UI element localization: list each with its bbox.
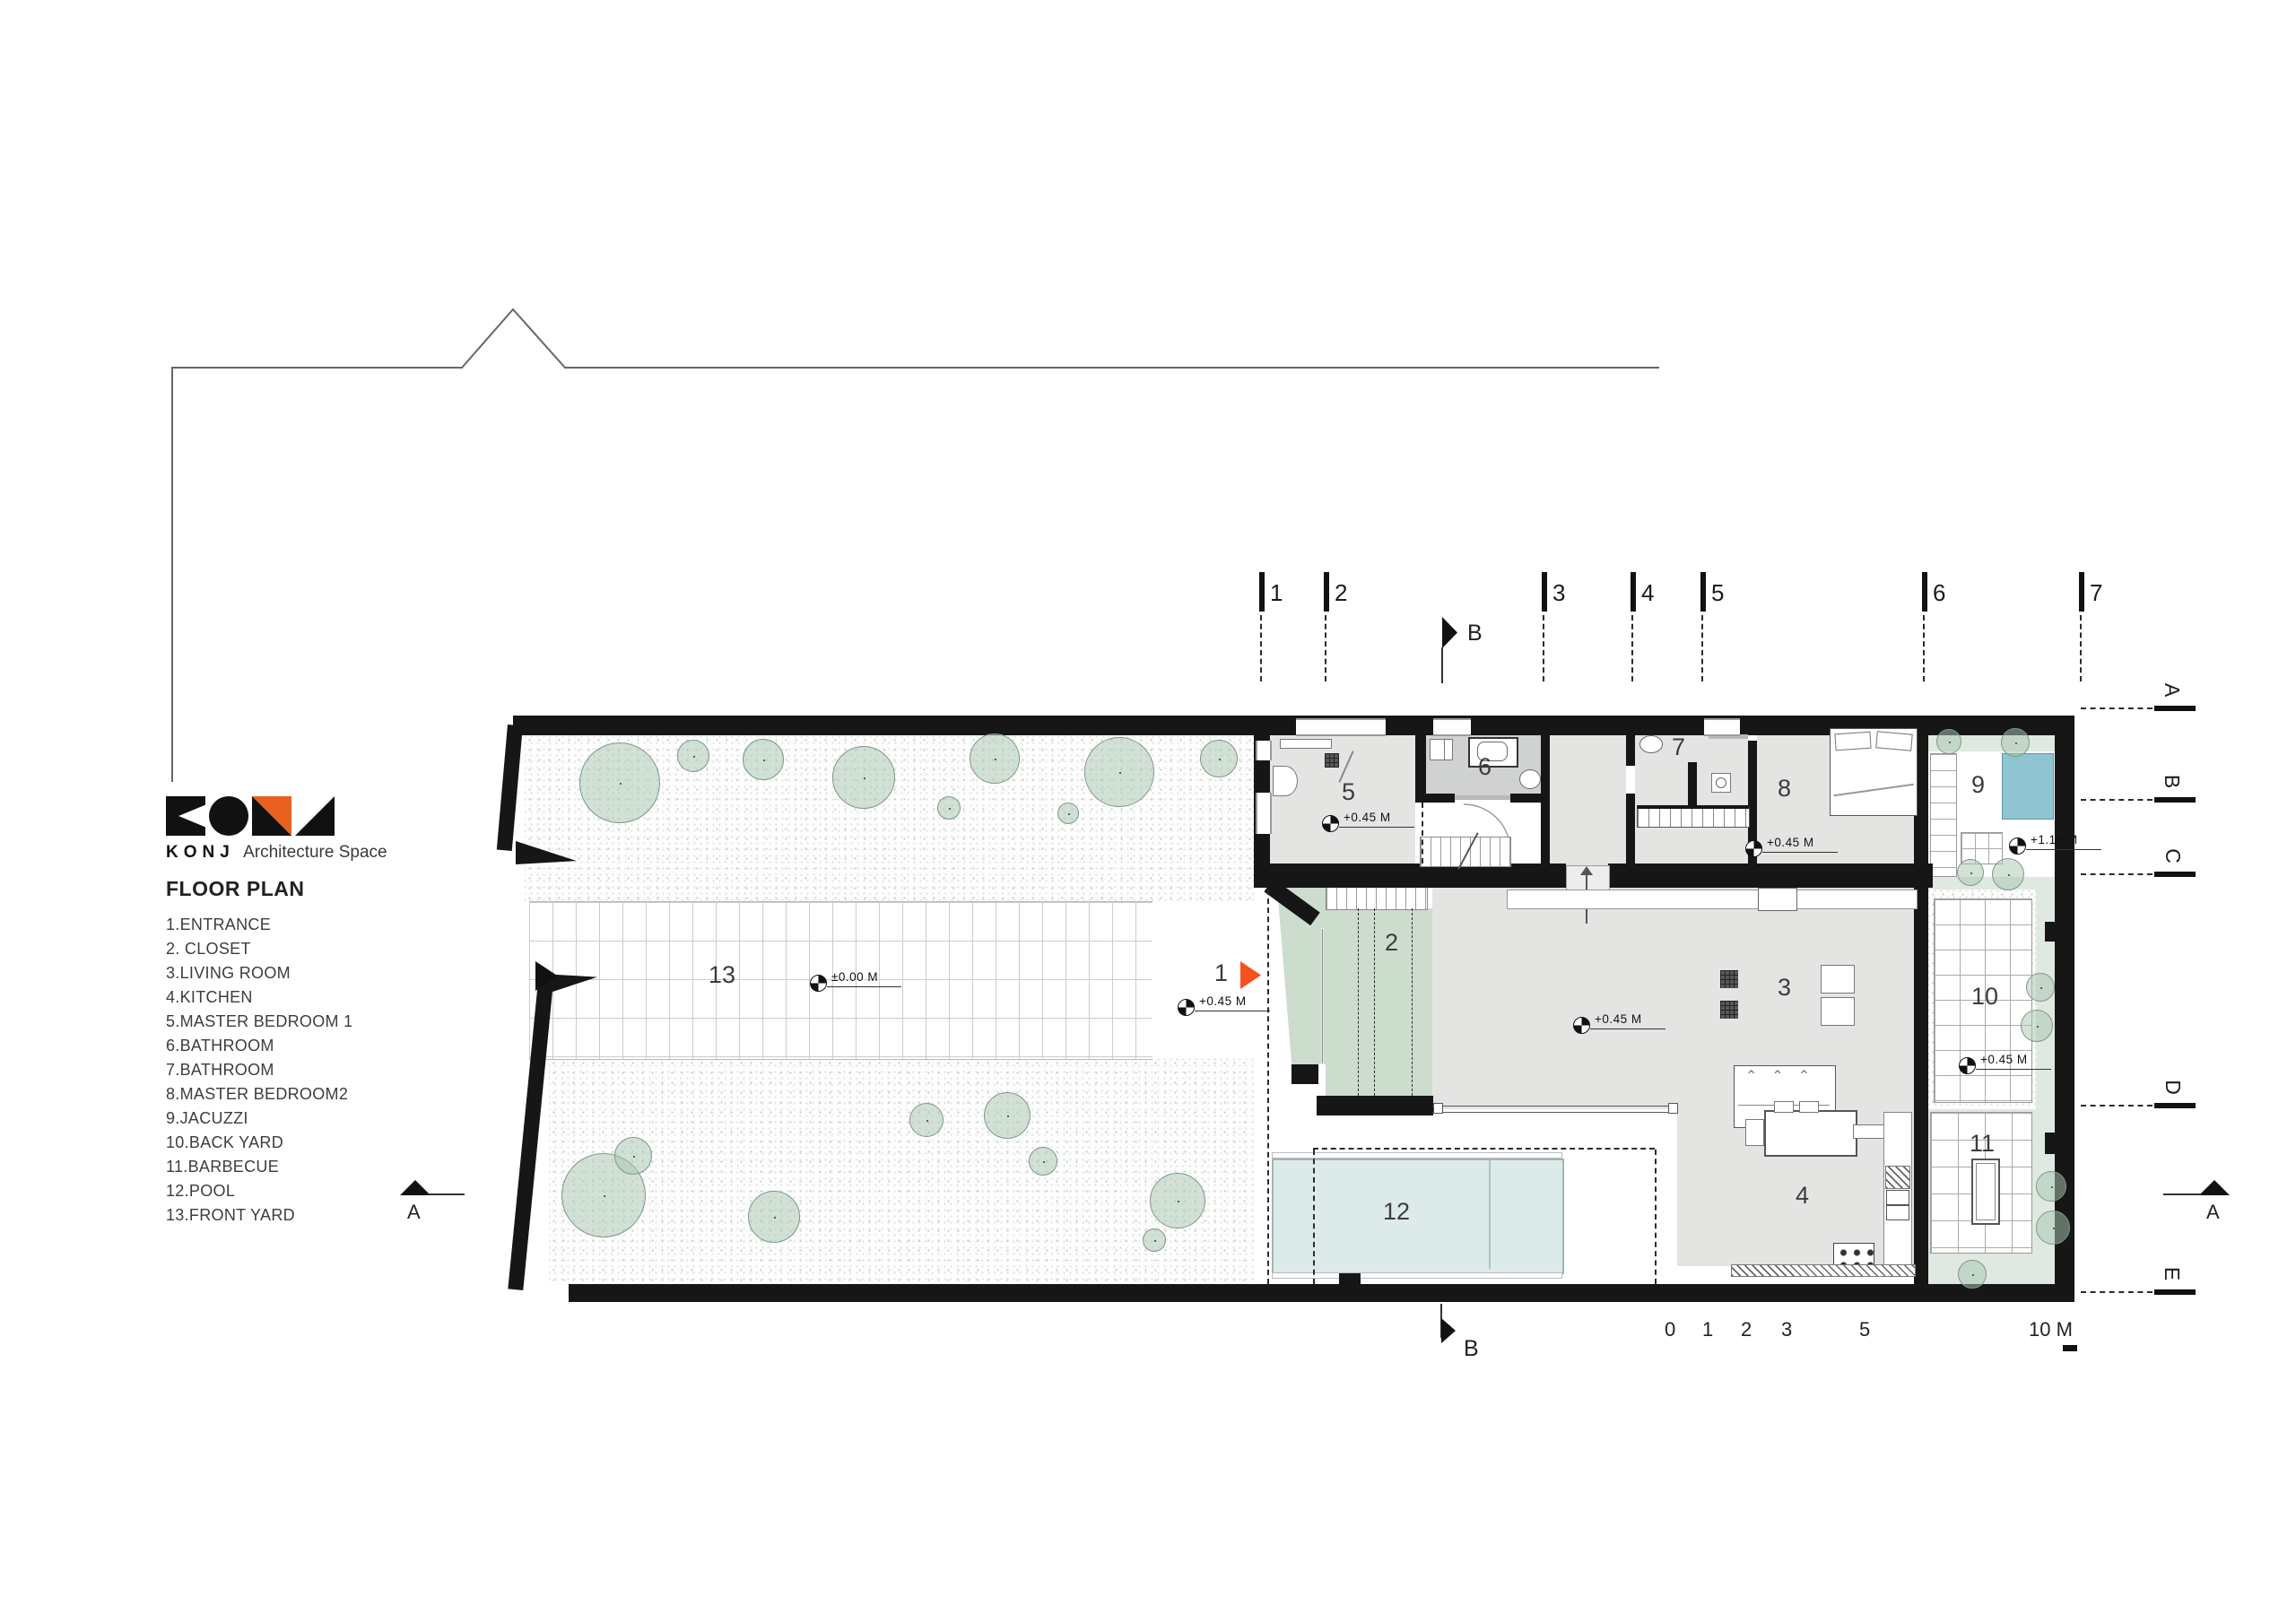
tree-icon — [1143, 1228, 1166, 1252]
bedroom1-cabinet — [1325, 753, 1339, 768]
grid2-dashed-pool — [1313, 1150, 1315, 1284]
legend-item-living: 3.LIVING ROOM — [166, 964, 462, 988]
bathroom2-toilet — [1639, 735, 1663, 753]
grid-col-1: 1 — [1270, 579, 1283, 607]
legend-item-entrance: 1.ENTRANCE — [166, 916, 462, 940]
living-counter — [1507, 890, 1918, 909]
section-b-top-label: B — [1467, 621, 1483, 647]
south-wall — [569, 1284, 2074, 1302]
dining-pad-a — [1774, 1101, 1794, 1113]
room-number-living: 3 — [1778, 974, 1791, 1002]
window-bathroom1-north — [1433, 718, 1471, 736]
tree-icon — [2036, 1171, 2066, 1202]
legend-item-kitchen: 4.KITCHEN — [166, 988, 462, 1012]
closet-glass-wall — [1321, 928, 1324, 1064]
pool-deck-edge-bottom — [1272, 1272, 1562, 1279]
bathroom1-west-wall — [1415, 716, 1426, 801]
room-number-backyard: 10 — [1971, 983, 1998, 1011]
grid-col-2: 2 — [1335, 579, 1347, 607]
room-number-bedroom1: 5 — [1342, 778, 1355, 806]
kitchen-faucet-unit — [1885, 1166, 1910, 1189]
legend-item-barbecue: 11.BARBECUE — [166, 1158, 462, 1182]
level-marker-bedroom2: +0.45 M — [1745, 836, 1838, 857]
interior-band-wall-east — [1608, 864, 1933, 888]
pool-lane-line — [1489, 1160, 1491, 1269]
tree-icon — [677, 740, 709, 772]
tree-icon — [1992, 858, 2024, 890]
room-number-entrance: 1 — [1214, 959, 1228, 987]
jacuzzi-basin — [2002, 753, 2054, 820]
tree-icon — [1029, 1147, 1057, 1176]
hall-floor — [1550, 735, 1626, 865]
east-wall-stub-c — [2045, 922, 2057, 942]
logo-j-icon — [295, 796, 335, 836]
hall-east-wall — [1541, 716, 1550, 865]
kitchen-sink-bowl-a — [1886, 1190, 1909, 1205]
kitchen-counter-hatch — [1731, 1264, 1916, 1277]
east-wall-stub-d — [2045, 1133, 2057, 1154]
bathroom1-door-sill — [1455, 795, 1510, 800]
window-bedroom1-west-a — [1256, 741, 1272, 760]
logo-brand-text: KONJ — [166, 843, 235, 862]
room-number-bathroom2: 7 — [1672, 733, 1685, 761]
tree-icon — [1150, 1173, 1205, 1228]
tree-icon — [1084, 737, 1154, 807]
living-armchair-b — [1821, 997, 1855, 1026]
room-number-frontyard: 13 — [709, 961, 735, 989]
level-icon — [810, 975, 827, 992]
logo-tagline-text: Architecture Space — [243, 843, 387, 862]
scale-3: 3 — [1781, 1318, 1792, 1341]
tree-icon — [748, 1191, 800, 1243]
grid-col-7: 7 — [2090, 579, 2102, 607]
interior-band-wall-west — [1254, 864, 1566, 888]
room-number-bedroom2: 8 — [1778, 775, 1791, 803]
logo: KONJ Architecture Space — [166, 796, 399, 868]
grid-col-4: 4 — [1641, 579, 1654, 607]
tree-icon — [832, 746, 895, 809]
tree-icon — [2021, 1010, 2053, 1042]
legend-item-bath1: 6.BATHROOM — [166, 1037, 462, 1061]
room-number-barbecue: 11 — [1970, 1130, 1995, 1158]
legend-item-jacuzzi: 9.JACUZZI — [166, 1109, 462, 1133]
room-number-closet: 2 — [1385, 929, 1398, 957]
barbecue-unit — [1971, 1159, 2000, 1225]
level-icon — [1959, 1057, 1976, 1074]
grid-row-e: E — [2160, 1267, 2184, 1280]
bathroom1-toilet — [1519, 769, 1541, 789]
south-wall-stub — [1339, 1273, 1361, 1286]
sliding-door-handle-east — [1668, 1103, 1678, 1114]
tree-icon — [1057, 803, 1079, 824]
jacuzzi-deck-slats — [1930, 753, 1957, 877]
tree-icon — [1958, 1260, 1987, 1289]
grid-col-3: 3 — [1552, 579, 1565, 607]
pool-zone-dashed-east — [1655, 1150, 1657, 1284]
level-marker-front-yard: ±0.00 M — [810, 970, 901, 992]
tree-icon — [1957, 859, 1984, 886]
scale-10m: 10 M — [2029, 1318, 2073, 1341]
dining-table — [1764, 1110, 1857, 1157]
living-sliding-door — [1432, 1106, 1677, 1113]
level-marker-entrance: +0.45 M — [1178, 994, 1270, 1016]
scale-5: 5 — [1859, 1318, 1870, 1341]
logo-o-icon — [209, 796, 248, 836]
living-armchair-a — [1821, 965, 1855, 994]
level-icon — [1745, 840, 1762, 857]
scale-1: 1 — [1702, 1318, 1713, 1341]
window-bathroom2-north — [1704, 718, 1740, 736]
grid-row-b: B — [2160, 775, 2184, 788]
tree-icon — [1200, 740, 1238, 777]
grid1-dashed-through-plan — [1267, 890, 1269, 1284]
tree-icon — [614, 1137, 652, 1175]
legend: FLOOR PLAN 1.ENTRANCE 2. CLOSET 3.LIVING… — [166, 877, 462, 1230]
dining-chair-west — [1745, 1119, 1764, 1146]
legend-item-backyard: 10.BACK YARD — [166, 1133, 462, 1158]
room-number-kitchen: 4 — [1796, 1182, 1809, 1210]
closet-ramp — [1326, 908, 1432, 1096]
bathroom1-south-wall-b — [1510, 794, 1543, 803]
pool-zone-dashed-top — [1313, 1148, 1655, 1150]
bathroom2-west-wall-b — [1626, 794, 1635, 865]
tree-icon — [970, 733, 1020, 784]
legend-item-closet: 2. CLOSET — [166, 940, 462, 964]
tree-icon — [909, 1103, 944, 1137]
grid-row-d: D — [2161, 1080, 2185, 1095]
bathroom2-west-wall-a — [1626, 716, 1635, 766]
level-marker-living: +0.45 M — [1573, 1012, 1665, 1034]
section-a-right-label: A — [2206, 1201, 2220, 1224]
level-marker-jacuzzi: +1.15 M — [2009, 833, 2101, 855]
legend-item-bedroom1: 5.MASTER BEDROOM 1 — [166, 1012, 462, 1037]
dining-pad-b — [1799, 1101, 1819, 1113]
bedroom1-open-edge — [1422, 803, 1423, 864]
bathroom2-drain-circle — [1716, 777, 1726, 788]
legend-title: FLOOR PLAN — [166, 877, 462, 901]
scale-2: 2 — [1741, 1318, 1752, 1341]
closet-step-wall — [1291, 1064, 1318, 1084]
scale-tick — [2063, 1345, 2077, 1351]
grid-col-5: 5 — [1711, 579, 1724, 607]
level-icon — [1178, 999, 1195, 1016]
bathroom1-cabinet — [1430, 739, 1453, 760]
window-bedroom1-north — [1296, 718, 1386, 736]
legend-item-bath2: 7.BATHROOM — [166, 1061, 462, 1085]
level-icon — [2009, 838, 2026, 855]
tree-icon — [1936, 729, 1961, 754]
grid-col-6: 6 — [1933, 579, 1945, 607]
bedroom1-shelf — [1280, 739, 1332, 749]
house-east-wall — [1914, 735, 1928, 1284]
section-a-left-label: A — [407, 1201, 421, 1224]
sliding-door-handle-west — [1433, 1103, 1443, 1114]
kitchen-counter-column — [1883, 1112, 1912, 1266]
kitchen-sink-bowl-b — [1886, 1205, 1909, 1220]
level-marker-bedroom1: +0.45 M — [1322, 811, 1414, 832]
tree-icon — [937, 796, 961, 820]
tree-icon — [984, 1092, 1031, 1139]
scale-0: 0 — [1665, 1318, 1675, 1341]
pool-water — [1272, 1159, 1564, 1274]
tree-icon — [579, 742, 660, 823]
tree-icon — [2026, 973, 2055, 1002]
room-number-bathroom1: 6 — [1478, 753, 1492, 781]
bathroom1-south-wall-a — [1415, 794, 1455, 803]
tree-icon — [743, 739, 784, 780]
pool-deck-edge-top — [1272, 1152, 1562, 1159]
bedroom1-chair — [1273, 766, 1298, 796]
grid-row-c: C — [2161, 848, 2185, 864]
section-b-bottom-label: B — [1464, 1336, 1479, 1362]
room-number-pool: 12 — [1383, 1198, 1410, 1226]
bed-pillow-right — [1875, 731, 1913, 751]
sofa-arrows: ⌃⌃⌃ — [1740, 1067, 1830, 1081]
legend-item-bedroom2: 8.MASTER BEDROOM2 — [166, 1085, 462, 1109]
level-icon — [1573, 1017, 1590, 1034]
tree-icon — [2036, 1211, 2070, 1245]
wardrobe-closet — [1637, 805, 1750, 828]
living-speaker-a — [1720, 970, 1738, 988]
closet-stair — [1326, 886, 1428, 910]
level-icon — [1322, 815, 1339, 832]
level-marker-backyard: +0.45 M — [1959, 1053, 2051, 1074]
bed-pillow-left — [1834, 732, 1871, 751]
living-speaker-b — [1720, 1001, 1738, 1019]
room-number-jacuzzi: 9 — [1971, 771, 1985, 799]
tree-icon — [2001, 728, 2030, 757]
grid-row-a: A — [2160, 683, 2184, 697]
closet-south-wall — [1317, 1096, 1433, 1115]
floor-plan-sheet: KONJ Architecture Space FLOOR PLAN 1.ENT… — [0, 0, 2296, 1623]
window-bedroom1-west-b — [1256, 793, 1272, 834]
living-counter-unit — [1758, 888, 1797, 911]
